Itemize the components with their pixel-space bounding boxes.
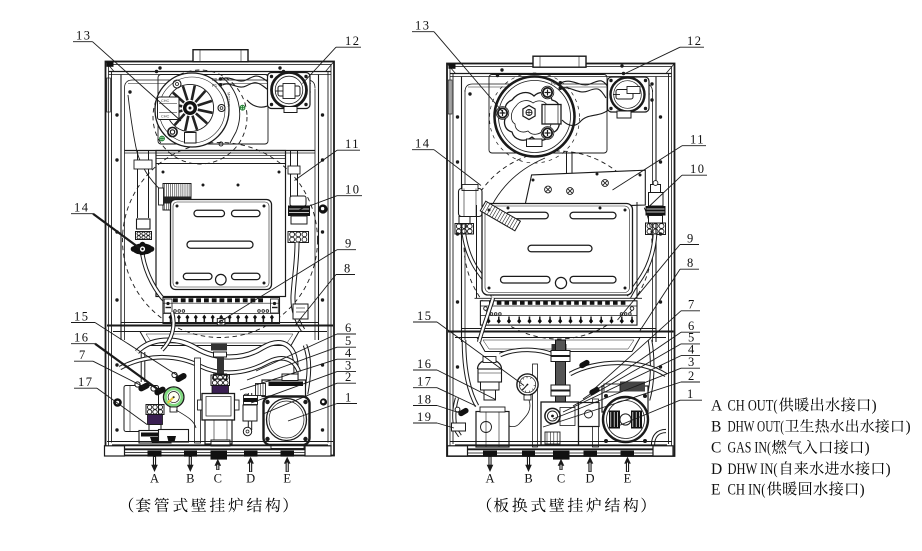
svg-text:11: 11 — [345, 137, 360, 151]
svg-text:B: B — [711, 419, 721, 436]
svg-text:D: D — [585, 472, 594, 486]
svg-text:13: 13 — [76, 29, 92, 43]
svg-text:GAS IN(: GAS IN( — [728, 440, 772, 457]
svg-text:7: 7 — [79, 348, 87, 362]
svg-text:CHC: CHC — [161, 99, 169, 103]
svg-text:17: 17 — [78, 375, 94, 389]
svg-text:16: 16 — [74, 331, 90, 345]
svg-text:E: E — [283, 472, 291, 486]
svg-text:9: 9 — [345, 237, 353, 251]
svg-text:2: 2 — [688, 369, 696, 383]
svg-text:C: C — [214, 472, 222, 486]
svg-text:6: 6 — [345, 321, 353, 335]
svg-text:B: B — [524, 472, 532, 486]
svg-text:DHW IN(: DHW IN( — [728, 461, 778, 478]
svg-text:CH IN(: CH IN( — [728, 481, 766, 498]
svg-text:): ) — [886, 461, 891, 478]
svg-text:10: 10 — [690, 162, 706, 176]
svg-text:18: 18 — [417, 392, 433, 406]
svg-text:19: 19 — [417, 410, 433, 424]
svg-text:8: 8 — [687, 256, 695, 270]
svg-text:P0: P0 — [212, 77, 218, 82]
svg-text:): ) — [865, 440, 870, 457]
svg-text:C: C — [711, 440, 721, 457]
svg-text:10: 10 — [345, 183, 361, 197]
svg-text:14: 14 — [74, 201, 90, 215]
svg-text:P0: P0 — [551, 81, 557, 86]
svg-text:12: 12 — [345, 34, 361, 48]
svg-text:14: 14 — [415, 137, 431, 151]
svg-text:13: 13 — [415, 19, 431, 33]
svg-text:): ) — [872, 397, 877, 414]
svg-text:A: A — [150, 472, 159, 486]
svg-text:): ) — [906, 419, 911, 436]
svg-text:9: 9 — [687, 231, 695, 245]
svg-text:3: 3 — [688, 355, 696, 369]
svg-text:CH OUT(: CH OUT( — [728, 397, 778, 414]
svg-text:DHW OUT(: DHW OUT( — [728, 419, 785, 436]
svg-text:15: 15 — [417, 309, 433, 323]
svg-text:1: 1 — [345, 390, 353, 404]
svg-text:12: 12 — [687, 34, 703, 48]
svg-text:1: 1 — [687, 387, 695, 401]
svg-text:MOTOR: MOTOR — [227, 92, 232, 107]
svg-text:2: 2 — [345, 370, 353, 384]
svg-text:A: A — [485, 472, 494, 486]
svg-text:E: E — [711, 481, 720, 498]
svg-text:CHC: CHC — [161, 115, 169, 119]
svg-text:15: 15 — [74, 309, 90, 323]
svg-text:A: A — [711, 397, 723, 414]
svg-text:B: B — [186, 472, 194, 486]
svg-text:): ) — [860, 481, 865, 498]
svg-text:16: 16 — [417, 357, 433, 371]
svg-text:7: 7 — [688, 298, 696, 312]
svg-text:P1: P1 — [212, 83, 218, 88]
svg-text:17: 17 — [417, 375, 433, 389]
svg-text:E: E — [624, 472, 632, 486]
svg-text:11: 11 — [690, 133, 705, 147]
svg-text:D: D — [711, 461, 722, 478]
svg-text:D: D — [246, 472, 255, 486]
svg-text:8: 8 — [344, 261, 352, 275]
svg-text:C: C — [557, 472, 565, 486]
